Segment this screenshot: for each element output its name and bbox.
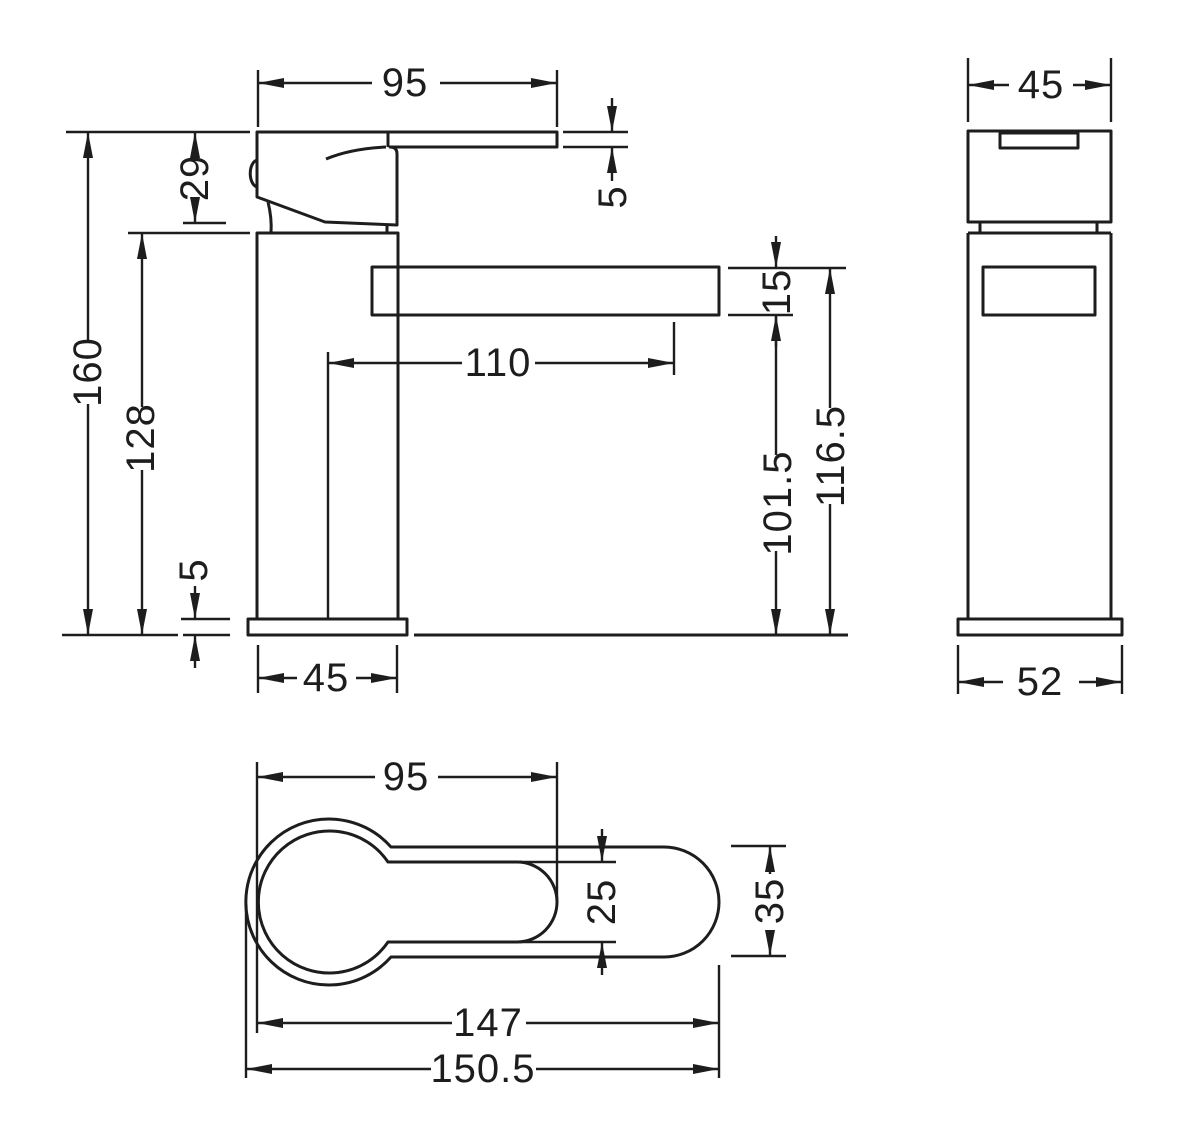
side-head-outline (968, 131, 1111, 222)
dim-front-body-width: 45 (258, 645, 397, 700)
dim-front-spout-reach: 110 (328, 322, 674, 620)
dim-front-spout-thickness-label: 15 (755, 269, 799, 316)
dim-front-handle-width-label: 95 (382, 61, 429, 105)
dim-lines (181, 586, 230, 668)
dim-front-handle-width: 95 (258, 61, 557, 127)
dim-lines (66, 132, 250, 223)
dim-side-base-depth: 52 (958, 645, 1122, 704)
side-view: 45 52 (958, 58, 1122, 704)
dim-top-body-length-label: 147 (453, 1001, 523, 1045)
top-geometry (246, 819, 719, 985)
dim-front-spout-underside-height-label: 101.5 (756, 450, 800, 555)
arrow-up (190, 132, 200, 158)
arrow-up (607, 147, 617, 173)
arrow-up (825, 268, 835, 294)
arrow-left (328, 358, 354, 368)
arrow-right (693, 1064, 719, 1074)
arrow-down (83, 609, 93, 635)
side-geometry (958, 131, 1122, 635)
dim-top-handle-length: 95 (257, 755, 557, 1033)
dim-side-body-depth-label: 45 (1018, 63, 1065, 107)
dim-top-body-width: 35 (731, 846, 792, 956)
dim-front-overall-height: 160 (62, 132, 178, 635)
arrow-down (190, 593, 200, 619)
dim-top-handle-width: 25 (520, 829, 624, 975)
arrow-right (531, 772, 557, 782)
arrow-left (257, 772, 283, 782)
dim-front-spout-underside-height: 101.5 (756, 315, 800, 635)
front-base-outline (248, 619, 407, 635)
dim-top-handle-length-label: 95 (383, 755, 430, 799)
arrow-left (968, 80, 994, 90)
arrow-left (258, 673, 284, 683)
dim-lines (257, 762, 557, 1033)
front-view: 95 5 29 160 128 (62, 61, 853, 700)
dim-side-body-depth: 45 (968, 58, 1111, 122)
front-handle-seam-curve (326, 147, 386, 159)
front-neck-left-curve (268, 202, 271, 233)
arrow-left (246, 1064, 272, 1074)
arrow-right (371, 673, 397, 683)
faucet-technical-drawing: 95 5 29 160 128 (0, 0, 1200, 1146)
front-head-outline (257, 132, 557, 225)
arrow-down (771, 242, 781, 268)
dim-top-overall-length: 150.5 (246, 908, 719, 1091)
arrow-up (597, 942, 607, 968)
arrow-down (825, 609, 835, 635)
arrow-up (765, 846, 775, 872)
dim-lines (563, 98, 628, 181)
top-outer-outline (246, 819, 719, 985)
dim-front-lever-thickness-label: 5 (591, 185, 635, 208)
arrow-right (1085, 80, 1111, 90)
arrow-down (771, 609, 781, 635)
dim-top-overall-length-label: 150.5 (430, 1047, 535, 1091)
dim-side-base-depth-label: 52 (1017, 660, 1064, 704)
dim-front-base-thickness-label: 5 (172, 558, 216, 581)
dim-front-base-thickness: 5 (172, 558, 230, 668)
arrow-down (607, 106, 617, 132)
dim-front-spout-reach-label: 110 (465, 341, 532, 385)
arrow-left (258, 78, 284, 88)
arrow-up (137, 233, 147, 259)
arrow-left (958, 677, 984, 687)
side-base-outline (958, 619, 1122, 635)
dim-top-handle-width-label: 25 (580, 879, 624, 926)
arrow-down (137, 609, 147, 635)
dim-front-spout-top-height-label: 116.5 (809, 405, 853, 507)
technical-drawing-sheet: 95 5 29 160 128 (0, 0, 1200, 1146)
arrow-right (648, 358, 674, 368)
dim-front-spout-top-height: 116.5 (809, 268, 853, 635)
dim-front-head-height-label: 29 (173, 155, 217, 202)
top-handle-outline (258, 831, 557, 973)
front-spout-outline (372, 267, 719, 315)
arrow-down (597, 836, 607, 862)
arrow-right (693, 1018, 719, 1028)
side-neck-lines (968, 222, 1111, 233)
top-view: 95 25 35 147 150.5 (246, 755, 792, 1091)
front-geometry (248, 132, 848, 635)
side-body-outline (968, 233, 1111, 619)
arrow-up (83, 132, 93, 158)
dim-front-body-width-label: 45 (303, 656, 350, 700)
dim-front-overall-height-label: 160 (66, 337, 110, 407)
dim-front-body-height-label: 128 (119, 403, 163, 473)
side-spout-outline (983, 267, 1095, 315)
arrow-down (765, 930, 775, 956)
side-lever-outline (1000, 133, 1078, 148)
dim-front-head-height: 29 (66, 132, 250, 223)
arrow-up (190, 635, 200, 661)
arrow-right (1096, 677, 1122, 687)
arrow-right (531, 78, 557, 88)
dim-front-lever-thickness: 5 (563, 98, 635, 209)
arrow-left (257, 1018, 283, 1028)
dim-top-body-width-label: 35 (748, 878, 792, 925)
